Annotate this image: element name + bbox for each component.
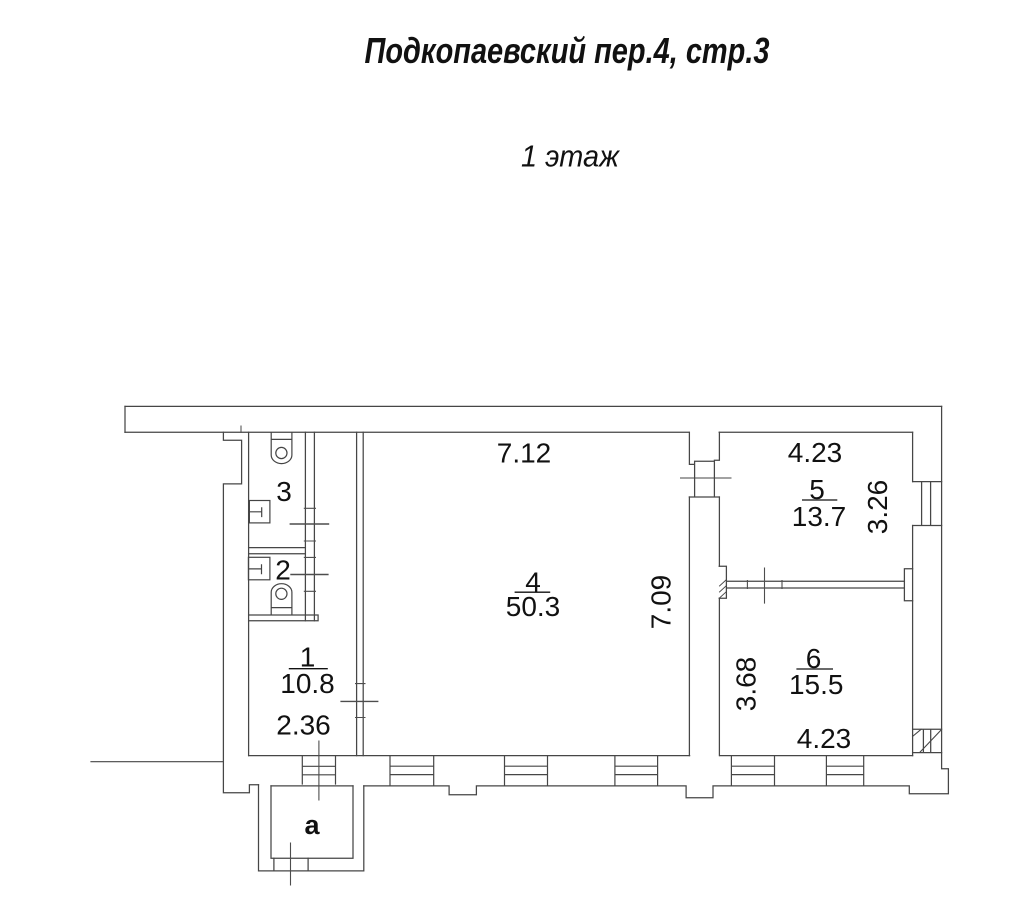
svg-text:2: 2 <box>275 555 291 586</box>
svg-text:50.3: 50.3 <box>506 591 561 622</box>
svg-text:1 этаж: 1 этаж <box>521 139 621 174</box>
svg-text:13.7: 13.7 <box>792 501 847 532</box>
svg-text:10.8: 10.8 <box>280 668 335 699</box>
svg-text:3.68: 3.68 <box>731 657 762 712</box>
svg-text:7.12: 7.12 <box>497 438 552 469</box>
svg-text:а: а <box>304 810 320 840</box>
svg-text:Подкопаевский пер.4, стр.3: Подкопаевский пер.4, стр.3 <box>365 30 770 71</box>
svg-text:2.36: 2.36 <box>276 710 331 741</box>
svg-text:3: 3 <box>276 476 292 507</box>
svg-text:4.23: 4.23 <box>788 437 843 468</box>
svg-text:15.5: 15.5 <box>789 669 844 700</box>
svg-text:4.23: 4.23 <box>797 723 852 754</box>
svg-text:7.09: 7.09 <box>646 575 677 630</box>
svg-text:3.26: 3.26 <box>862 480 893 535</box>
